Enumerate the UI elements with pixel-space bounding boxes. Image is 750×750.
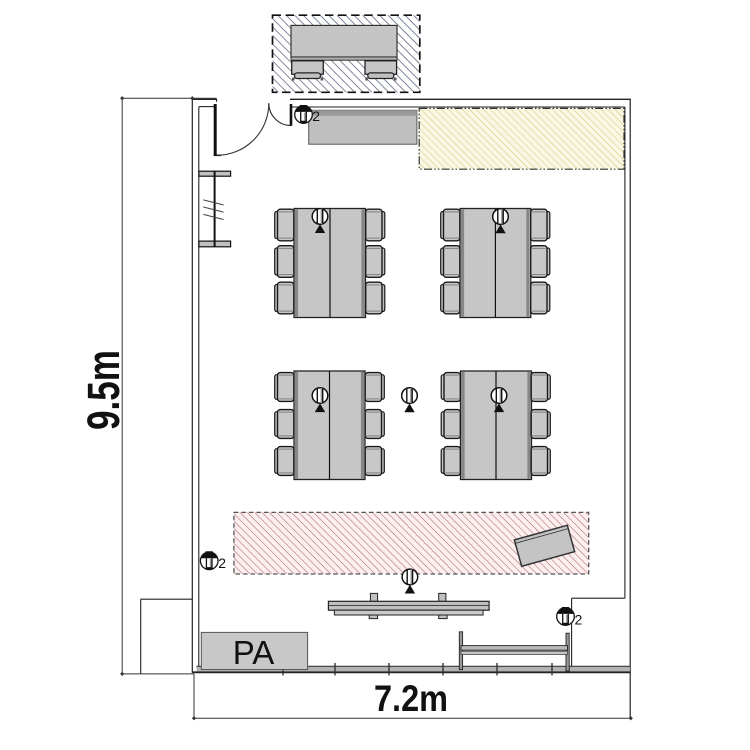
svg-text:9.5m: 9.5m: [78, 350, 129, 430]
svg-text:PA: PA: [233, 634, 275, 671]
svg-text:2: 2: [218, 555, 226, 571]
svg-text:7.2m: 7.2m: [374, 678, 448, 719]
svg-text:2: 2: [312, 108, 320, 124]
svg-text:2: 2: [575, 612, 583, 628]
